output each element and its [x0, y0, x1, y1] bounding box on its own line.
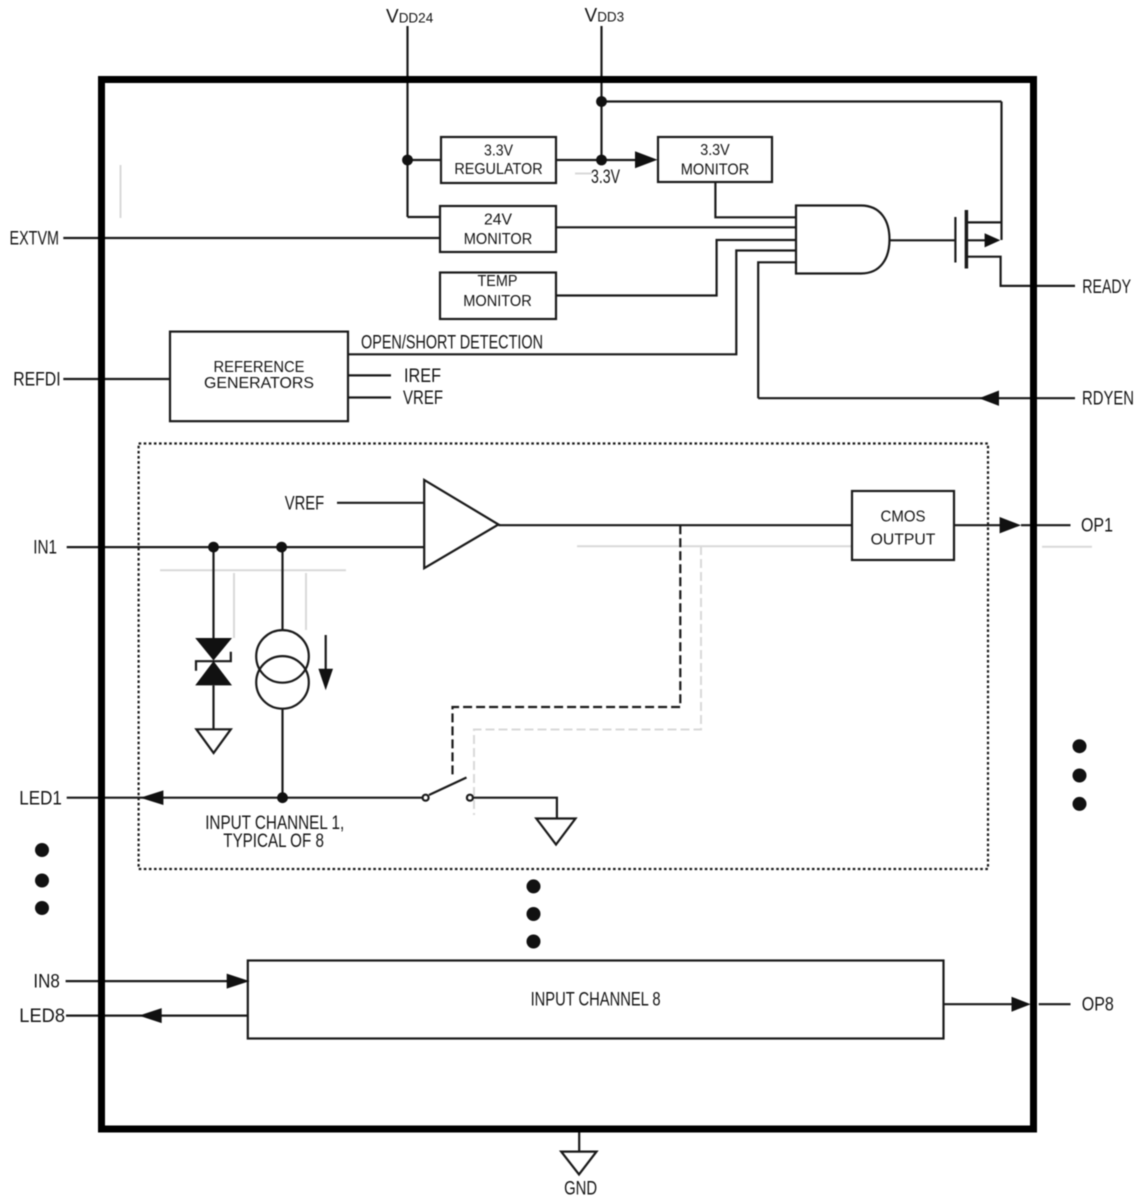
- svg-text:MONITOR: MONITOR: [464, 231, 533, 248]
- svg-text:MONITOR: MONITOR: [463, 293, 532, 310]
- svg-text:REFERENCE: REFERENCE: [214, 359, 305, 376]
- svg-text:IREF: IREF: [404, 366, 441, 387]
- svg-text:RDYEN: RDYEN: [1082, 389, 1134, 410]
- svg-text:READY: READY: [1082, 277, 1131, 298]
- svg-text:OPEN/SHORT DETECTION: OPEN/SHORT DETECTION: [361, 333, 543, 354]
- svg-text:LED1: LED1: [19, 788, 62, 809]
- svg-text:3.3V: 3.3V: [591, 167, 620, 188]
- svg-text:VDD3: VDD3: [585, 6, 625, 27]
- svg-text:3.3V: 3.3V: [484, 142, 513, 159]
- svg-text:OUTPUT: OUTPUT: [871, 532, 936, 549]
- svg-text:GENERATORS: GENERATORS: [204, 375, 314, 392]
- svg-text:CMOS: CMOS: [881, 509, 926, 526]
- svg-text:OP1: OP1: [1081, 516, 1113, 537]
- svg-text:EXTVM: EXTVM: [10, 229, 60, 250]
- svg-text:IN8: IN8: [33, 972, 59, 993]
- svg-text:IN1: IN1: [33, 538, 57, 559]
- svg-text:REGULATOR: REGULATOR: [454, 161, 542, 178]
- svg-text:TEMP: TEMP: [478, 273, 518, 290]
- svg-text:REFDI: REFDI: [13, 370, 60, 391]
- svg-text:VDD24: VDD24: [386, 7, 434, 28]
- svg-text:24V: 24V: [484, 211, 512, 228]
- svg-text:OP8: OP8: [1082, 995, 1114, 1016]
- svg-text:INPUT CHANNEL 8: INPUT CHANNEL 8: [531, 990, 661, 1011]
- svg-text:MONITOR: MONITOR: [681, 162, 750, 179]
- svg-text:TYPICAL OF 8: TYPICAL OF 8: [223, 831, 324, 852]
- svg-text:VREF: VREF: [285, 493, 325, 514]
- svg-text:VREF: VREF: [403, 388, 443, 409]
- svg-text:3.3V: 3.3V: [700, 142, 730, 159]
- svg-text:LED8: LED8: [19, 1006, 65, 1027]
- svg-text:GND: GND: [564, 1179, 597, 1200]
